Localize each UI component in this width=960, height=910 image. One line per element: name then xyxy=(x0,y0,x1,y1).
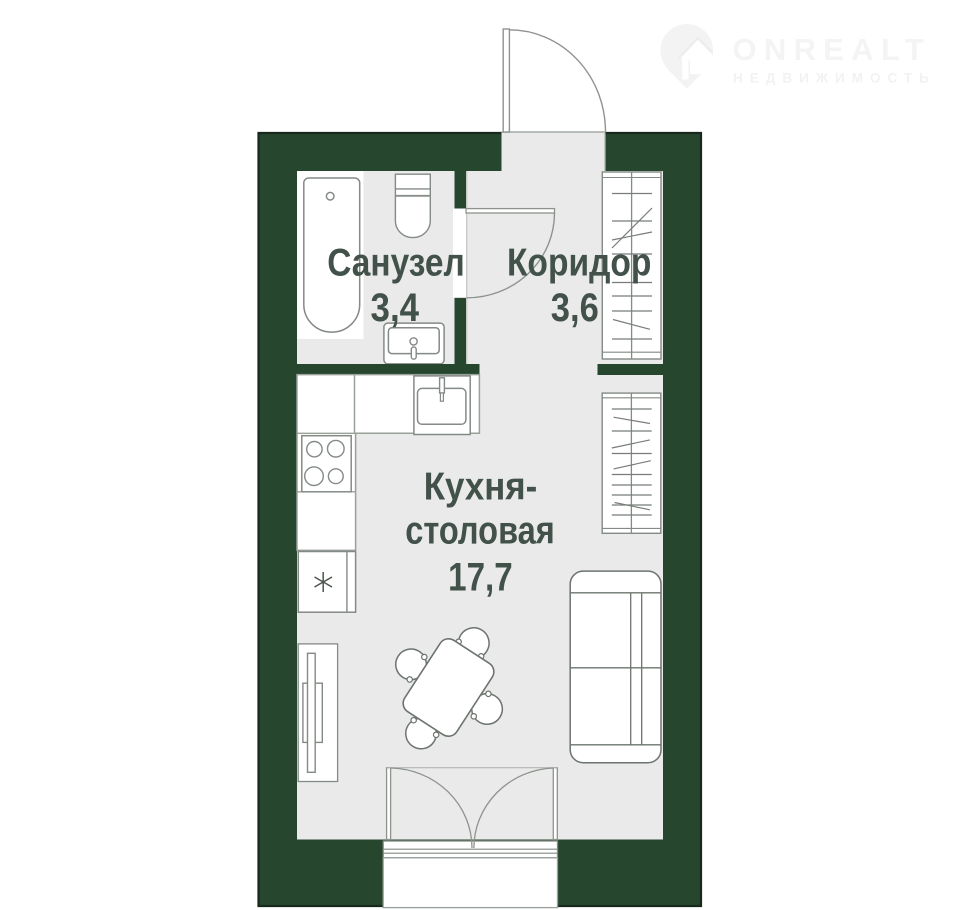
svg-text:ONREALT: ONREALT xyxy=(733,32,932,67)
svg-text:Кухня-: Кухня- xyxy=(424,466,538,509)
svg-text:Санузел: Санузел xyxy=(327,242,465,285)
svg-text:столовая: столовая xyxy=(405,510,555,553)
svg-text:17,7: 17,7 xyxy=(448,556,513,600)
svg-text:Коридор: Коридор xyxy=(507,242,652,285)
svg-text:3,4: 3,4 xyxy=(371,286,420,330)
svg-text:3,6: 3,6 xyxy=(551,286,599,330)
svg-text:НЕДВИЖИМОСТЬ: НЕДВИЖИМОСТЬ xyxy=(733,71,936,86)
